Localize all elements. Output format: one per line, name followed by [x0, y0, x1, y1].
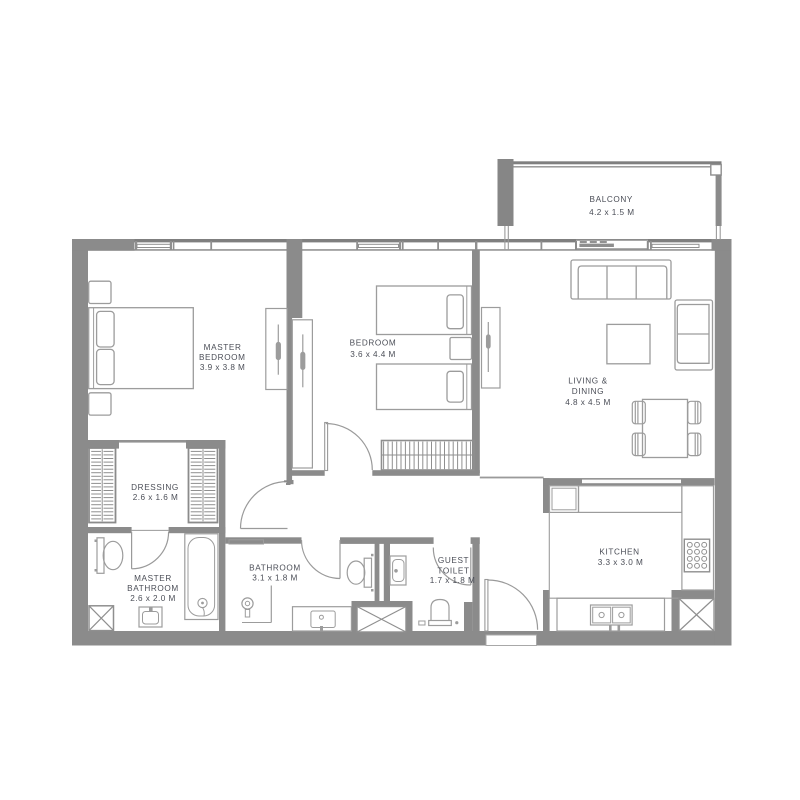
svg-text:DINING: DINING	[572, 387, 604, 396]
svg-text:LIVING &: LIVING &	[568, 377, 608, 386]
svg-text:BEDROOM: BEDROOM	[199, 353, 246, 362]
svg-text:TOILET: TOILET	[437, 567, 469, 576]
svg-text:2.6 x 2.0 M: 2.6 x 2.0 M	[130, 594, 175, 603]
svg-text:MASTER: MASTER	[134, 574, 172, 583]
svg-text:DRESSING: DRESSING	[131, 483, 179, 492]
svg-text:MASTER: MASTER	[204, 343, 242, 352]
svg-text:BALCONY: BALCONY	[590, 195, 633, 204]
svg-text:4.8 x 4.5 M: 4.8 x 4.5 M	[565, 398, 610, 407]
svg-text:1.7 x 1.8 M: 1.7 x 1.8 M	[430, 576, 475, 585]
svg-text:3.9 x 3.8 M: 3.9 x 3.8 M	[200, 363, 245, 372]
svg-text:3.6 x 4.4 M: 3.6 x 4.4 M	[350, 350, 395, 359]
svg-text:GUEST: GUEST	[438, 556, 469, 565]
svg-text:3.3 x 3.0 M: 3.3 x 3.0 M	[598, 558, 643, 567]
svg-text:4.2 x 1.5 M: 4.2 x 1.5 M	[589, 208, 634, 217]
svg-text:BATHROOM: BATHROOM	[127, 584, 179, 593]
svg-text:2.6 x 1.6 M: 2.6 x 1.6 M	[133, 493, 178, 502]
svg-text:BATHROOM: BATHROOM	[249, 564, 301, 573]
svg-text:BEDROOM: BEDROOM	[350, 339, 397, 348]
svg-text:KITCHEN: KITCHEN	[599, 548, 639, 557]
svg-text:3.1 x 1.8 M: 3.1 x 1.8 M	[252, 574, 297, 583]
